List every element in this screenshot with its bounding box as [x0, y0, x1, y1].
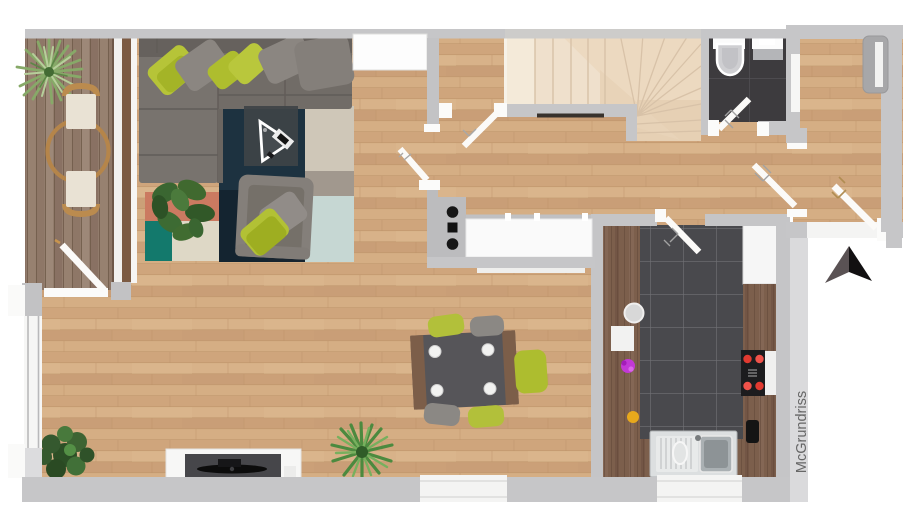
svg-text:McGrundriss: McGrundriss: [794, 391, 810, 473]
